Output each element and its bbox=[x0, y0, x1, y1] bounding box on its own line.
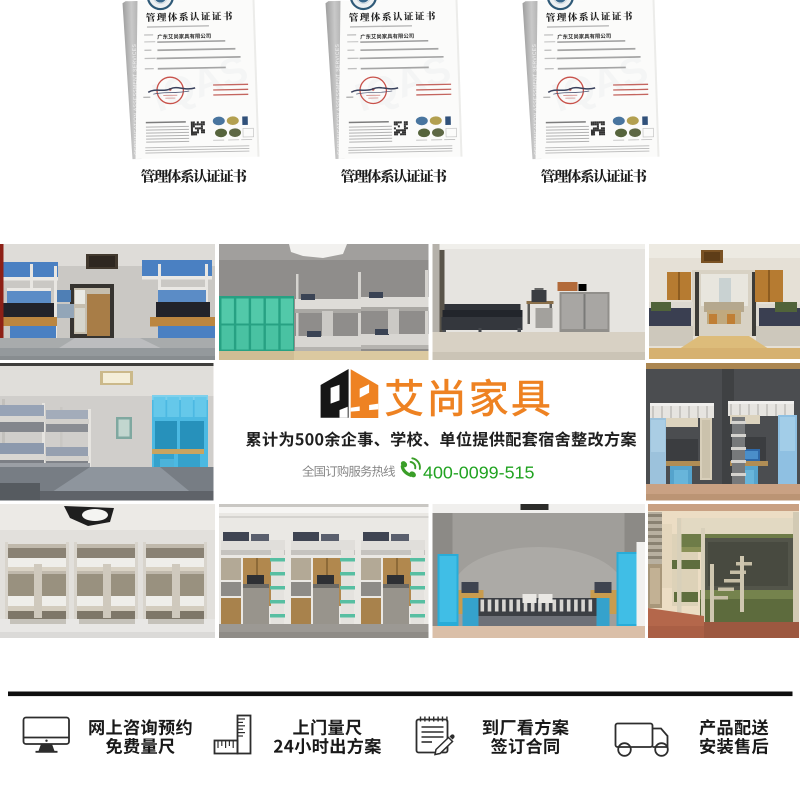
svg-text:400-0099-515: 400-0099-515 bbox=[423, 462, 534, 482]
